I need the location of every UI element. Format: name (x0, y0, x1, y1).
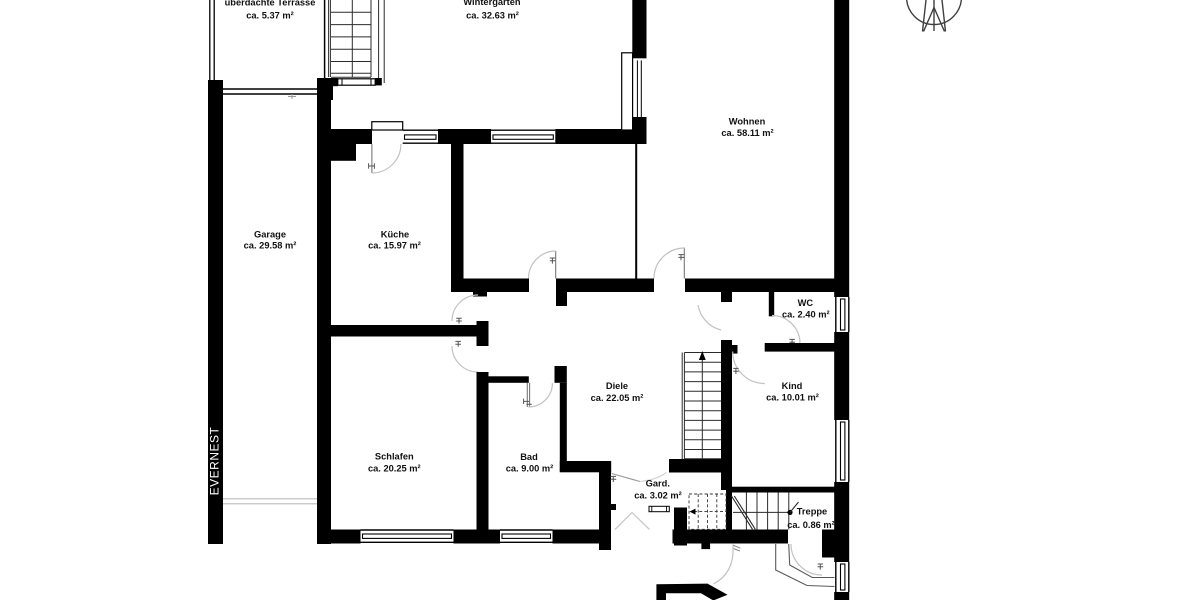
svg-text:überdachte Terrasse: überdachte Terrasse (225, 0, 316, 8)
svg-text:ca. 0.86 m²: ca. 0.86 m² (787, 520, 835, 530)
svg-text:Wohnen: Wohnen (729, 117, 766, 127)
svg-text:Bad: Bad (520, 452, 538, 462)
svg-text:ca. 3.02 m²: ca. 3.02 m² (634, 491, 682, 501)
svg-text:ca. 10.01 m²: ca. 10.01 m² (766, 392, 819, 402)
svg-text:Diele: Diele (606, 381, 628, 391)
svg-text:Kind: Kind (782, 381, 803, 391)
svg-text:Treppe: Treppe (797, 507, 827, 517)
svg-text:Schlafen: Schlafen (375, 452, 414, 462)
svg-text:ca. 2.40 m²: ca. 2.40 m² (782, 310, 830, 320)
svg-text:ca. 20.25 m²: ca. 20.25 m² (368, 464, 421, 474)
svg-text:ca. 5.37 m²: ca. 5.37 m² (246, 11, 294, 21)
svg-text:ca. 29.58 m²: ca. 29.58 m² (244, 240, 297, 250)
svg-text:EVERNEST: EVERNEST (208, 426, 222, 495)
svg-text:Garage: Garage (254, 230, 286, 240)
svg-text:WC: WC (798, 298, 814, 308)
svg-text:Küche: Küche (381, 230, 409, 240)
svg-text:ca. 32.63 m²: ca. 32.63 m² (466, 10, 519, 20)
svg-text:ca. 58.11 m²: ca. 58.11 m² (721, 128, 773, 138)
svg-text:ca. 15.97 m²: ca. 15.97 m² (368, 241, 421, 251)
svg-text:ca. 22.05 m²: ca. 22.05 m² (591, 393, 644, 403)
svg-text:Wintergarten: Wintergarten (463, 0, 521, 7)
svg-text:Gard.: Gard. (646, 478, 670, 488)
svg-text:ca. 9.00 m²: ca. 9.00 m² (506, 464, 554, 474)
